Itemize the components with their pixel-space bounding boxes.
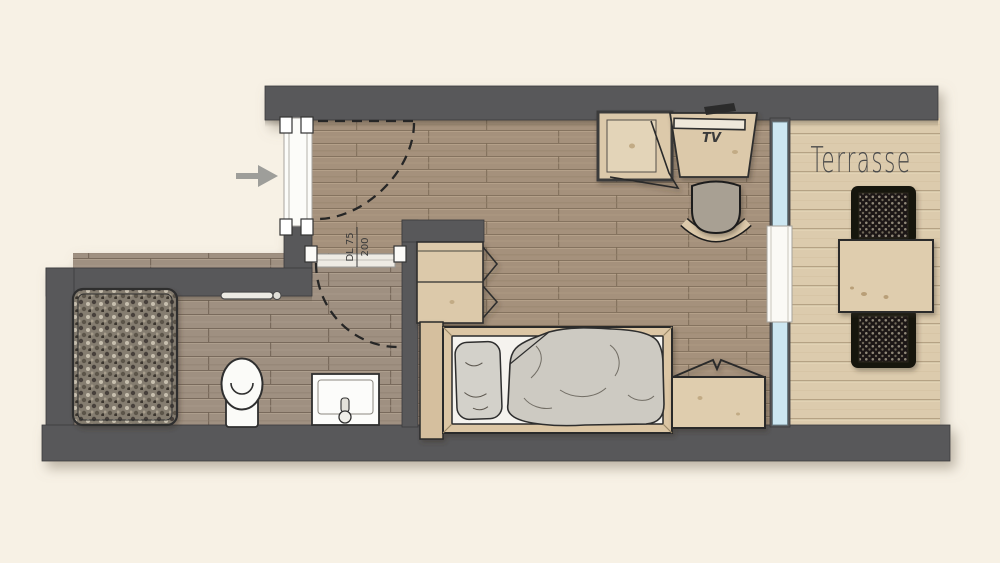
toilet-bowl [222, 359, 263, 410]
terrace-chair-top [851, 186, 916, 244]
terrace-table [839, 240, 933, 312]
wood-knot [884, 295, 889, 299]
table-top [839, 240, 933, 312]
towel-bar-end [273, 292, 281, 300]
faucet-base [339, 411, 351, 423]
wall-interior-stub [402, 220, 484, 242]
desk-chair [684, 182, 748, 238]
terrace-label: Terrasse [810, 138, 911, 180]
terrace-label-group: Terrasse [810, 138, 911, 180]
tv-label: TV [702, 131, 722, 146]
shower-tray [73, 289, 177, 425]
jamb [280, 219, 292, 235]
window-top [773, 122, 788, 226]
bath-door-post-right [394, 246, 406, 262]
tv [674, 118, 745, 129]
bed [420, 322, 672, 439]
floor-plan-svg: DL 75 200 [0, 0, 1000, 563]
window-bottom [773, 322, 788, 425]
chair-seat [692, 182, 740, 234]
terrace-chair-bottom [851, 308, 916, 368]
floorplan-canvas: DL 75 200 [0, 0, 1000, 563]
pillow-body [455, 341, 503, 420]
towel-rail [221, 292, 281, 300]
cabinet [598, 112, 678, 188]
door-width-text: DL 75 [345, 232, 356, 261]
towel-bar [221, 292, 273, 299]
duvet [508, 328, 664, 426]
wood-knot [629, 144, 635, 149]
faucet-stem [341, 398, 349, 412]
duvet-body [508, 328, 664, 426]
door-height-text: 200 [360, 237, 371, 256]
entry-opening [284, 118, 312, 226]
chair-mesh [859, 193, 908, 238]
jamb [280, 117, 292, 133]
desk-tv: TV [670, 103, 757, 177]
toilet [222, 359, 263, 428]
wood-knot [850, 287, 854, 290]
bed-headboard [420, 322, 443, 439]
chair-mesh [859, 316, 908, 362]
jamb [301, 219, 313, 235]
wood-knot [861, 292, 867, 296]
shower [73, 289, 177, 425]
jamb [301, 117, 313, 133]
wood-knot [732, 150, 738, 154]
bath-door-post-left [305, 246, 317, 262]
wood-knot [698, 396, 703, 400]
wood-knot [450, 300, 455, 304]
bench-body [672, 377, 765, 428]
wood-knot [736, 413, 740, 416]
sink [312, 374, 379, 425]
pillow [455, 341, 503, 420]
